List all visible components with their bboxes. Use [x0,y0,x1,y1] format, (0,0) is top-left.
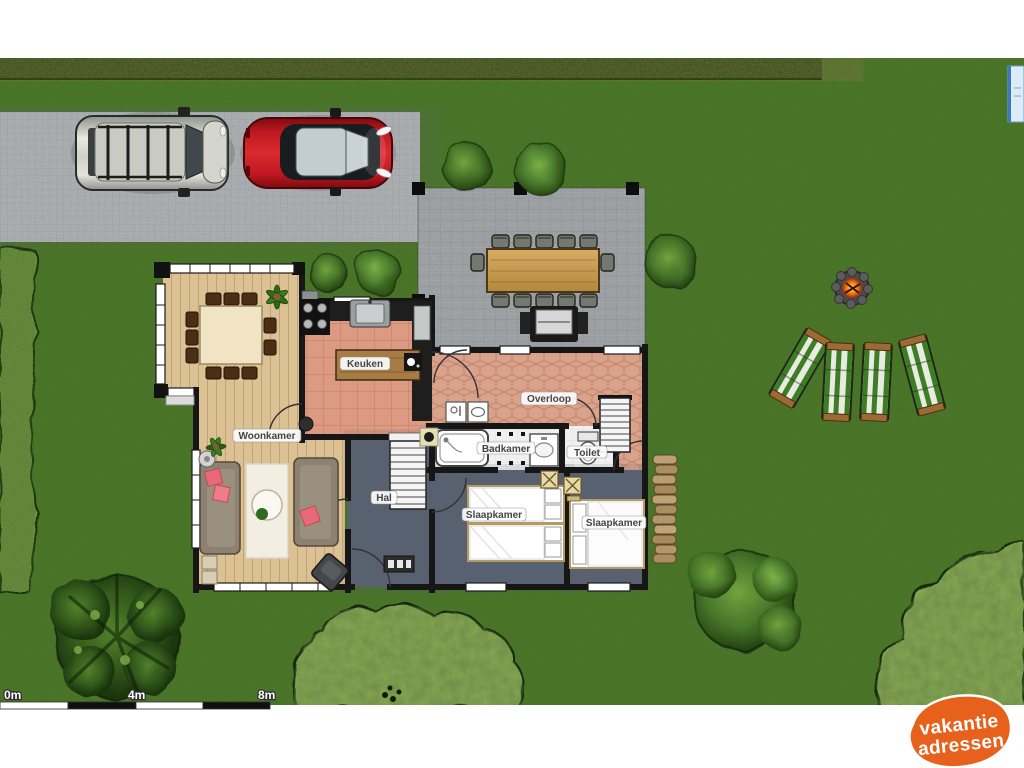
room-label-slaapkamer-rechts: Slaapkamer [582,516,646,529]
svg-text:Badkamer: Badkamer [482,444,530,455]
room-label-toilet: Toilet [567,446,607,459]
big-tree-bottom-left [50,575,183,699]
floorplan-image: Woonkamer Keuken Overloop Badkamer Toile… [0,0,1024,768]
car-suv-silver [71,107,235,197]
room-label-slaapkamer-links: Slaapkamer [462,508,526,521]
svg-text:Slaapkamer: Slaapkamer [586,518,642,529]
stove-icon [300,299,330,335]
table-plant-icon [256,508,268,520]
sofa-right [294,458,338,546]
sink-icon [350,300,390,327]
sofa-left [200,462,240,554]
hedge-top [0,58,822,80]
twin-beds [468,486,564,561]
bottom-margin [0,705,1024,768]
kettle-icon [424,432,434,442]
room-label-keuken: Keuken [340,357,390,370]
garden-step [166,396,194,405]
top-margin [0,0,1024,58]
waste-bin-icon [299,417,313,431]
bbq-grill [520,306,588,342]
car-hatchback-red [240,108,396,196]
outdoor-dining-set [471,235,614,307]
svg-text:Keuken: Keuken [347,359,383,370]
woodpile [652,455,678,563]
svg-text:Woonkamer: Woonkamer [238,431,295,442]
svg-text:Toilet: Toilet [574,448,601,459]
room-label-badkamer: Badkamer [477,442,535,455]
cooktop-appliance-icon [404,353,422,371]
staircase-overloop [598,395,632,452]
svg-text:4m: 4m [128,688,145,702]
room-label-overloop: Overloop [521,392,577,405]
svg-text:8m: 8m [258,688,275,702]
svg-text:0m: 0m [4,688,21,702]
blue-ui-artifact [1008,66,1024,122]
svg-text:Hal: Hal [376,493,392,504]
room-label-woonkamer: Woonkamer [233,429,301,442]
fire-pit [832,268,873,309]
double-bed [570,500,644,568]
extractor-hood-icon [302,291,318,300]
room-label-hal: Hal [371,491,397,504]
svg-text:Overloop: Overloop [527,394,571,405]
svg-text:Slaapkamer: Slaapkamer [466,510,522,521]
rug-and-coffee-table [246,464,288,558]
